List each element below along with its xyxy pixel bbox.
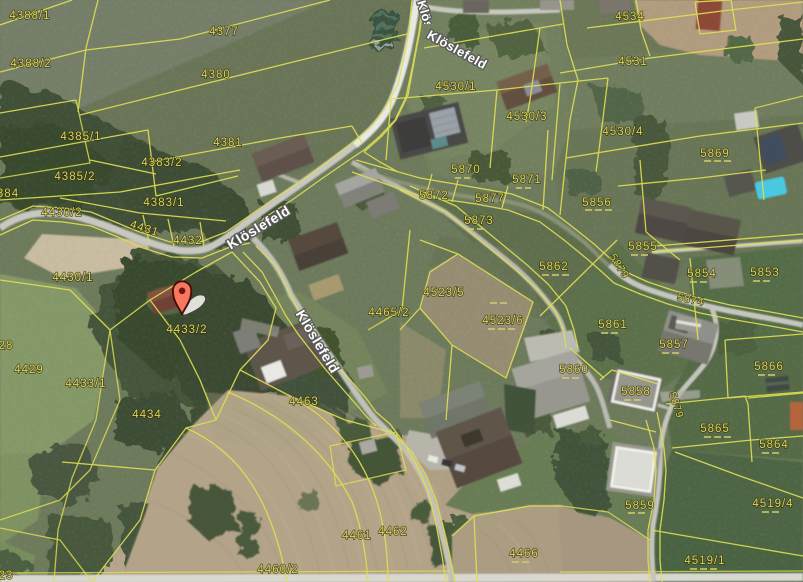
svg-text:4534: 4534 bbox=[615, 11, 645, 23]
svg-text:5873: 5873 bbox=[464, 215, 494, 227]
svg-text:384: 384 bbox=[0, 188, 19, 200]
svg-text:4461: 4461 bbox=[342, 530, 372, 542]
svg-text:4388/2: 4388/2 bbox=[10, 58, 51, 70]
svg-text:5865: 5865 bbox=[700, 423, 730, 435]
svg-text:5855: 5855 bbox=[628, 241, 658, 253]
svg-text:5856: 5856 bbox=[582, 197, 612, 209]
svg-text:4523/6: 4523/6 bbox=[482, 315, 523, 327]
svg-text:5864: 5864 bbox=[759, 439, 789, 451]
svg-text:4463: 4463 bbox=[289, 396, 319, 408]
svg-text:4383/1: 4383/1 bbox=[143, 197, 184, 209]
svg-text:4380: 4380 bbox=[201, 69, 231, 81]
svg-text:5853: 5853 bbox=[750, 267, 780, 279]
svg-text:4385/2: 4385/2 bbox=[54, 171, 95, 183]
svg-text:5857: 5857 bbox=[659, 339, 689, 351]
svg-text:4432: 4432 bbox=[173, 235, 203, 247]
svg-text:4519/4: 4519/4 bbox=[752, 498, 793, 510]
svg-text:5862: 5862 bbox=[539, 261, 569, 273]
svg-text:4465/2: 4465/2 bbox=[368, 307, 409, 319]
svg-text:4381: 4381 bbox=[213, 137, 243, 149]
svg-text:4460/2: 4460/2 bbox=[257, 564, 298, 576]
svg-text:4430/1: 4430/1 bbox=[52, 272, 93, 284]
svg-text:4466: 4466 bbox=[509, 548, 539, 560]
svg-text:4433/1: 4433/1 bbox=[65, 378, 106, 390]
svg-text:5869: 5869 bbox=[700, 148, 730, 160]
svg-text:4429: 4429 bbox=[14, 364, 44, 376]
svg-text:5854: 5854 bbox=[687, 268, 717, 280]
svg-text:5858: 5858 bbox=[621, 386, 651, 398]
svg-text:4388/1: 4388/1 bbox=[9, 10, 50, 22]
svg-text:4530/3: 4530/3 bbox=[506, 111, 547, 123]
svg-text:5861: 5861 bbox=[598, 319, 628, 331]
svg-text:4433/2: 4433/2 bbox=[166, 324, 207, 336]
svg-text:5866: 5866 bbox=[754, 361, 784, 373]
svg-text:5877: 5877 bbox=[475, 193, 505, 205]
svg-text:4385/1: 4385/1 bbox=[60, 131, 101, 143]
svg-text:28: 28 bbox=[0, 340, 13, 352]
svg-text:4383/2: 4383/2 bbox=[141, 157, 182, 169]
svg-text:5872: 5872 bbox=[419, 190, 449, 202]
svg-text:4530/1: 4530/1 bbox=[435, 81, 476, 93]
svg-text:4434: 4434 bbox=[132, 409, 162, 421]
svg-text:4523/5: 4523/5 bbox=[423, 287, 464, 299]
svg-text:4462: 4462 bbox=[378, 526, 408, 538]
svg-text:4531: 4531 bbox=[618, 56, 648, 68]
svg-text:4377: 4377 bbox=[209, 26, 239, 38]
svg-text:23: 23 bbox=[0, 570, 13, 582]
svg-text:4530/4: 4530/4 bbox=[602, 126, 643, 138]
svg-text:5860: 5860 bbox=[559, 364, 589, 376]
svg-text:5870: 5870 bbox=[451, 164, 481, 176]
svg-text:4519/1: 4519/1 bbox=[684, 555, 725, 567]
svg-text:5859: 5859 bbox=[625, 500, 655, 512]
svg-text:4430/2: 4430/2 bbox=[41, 207, 82, 219]
svg-text:5871: 5871 bbox=[512, 174, 542, 186]
